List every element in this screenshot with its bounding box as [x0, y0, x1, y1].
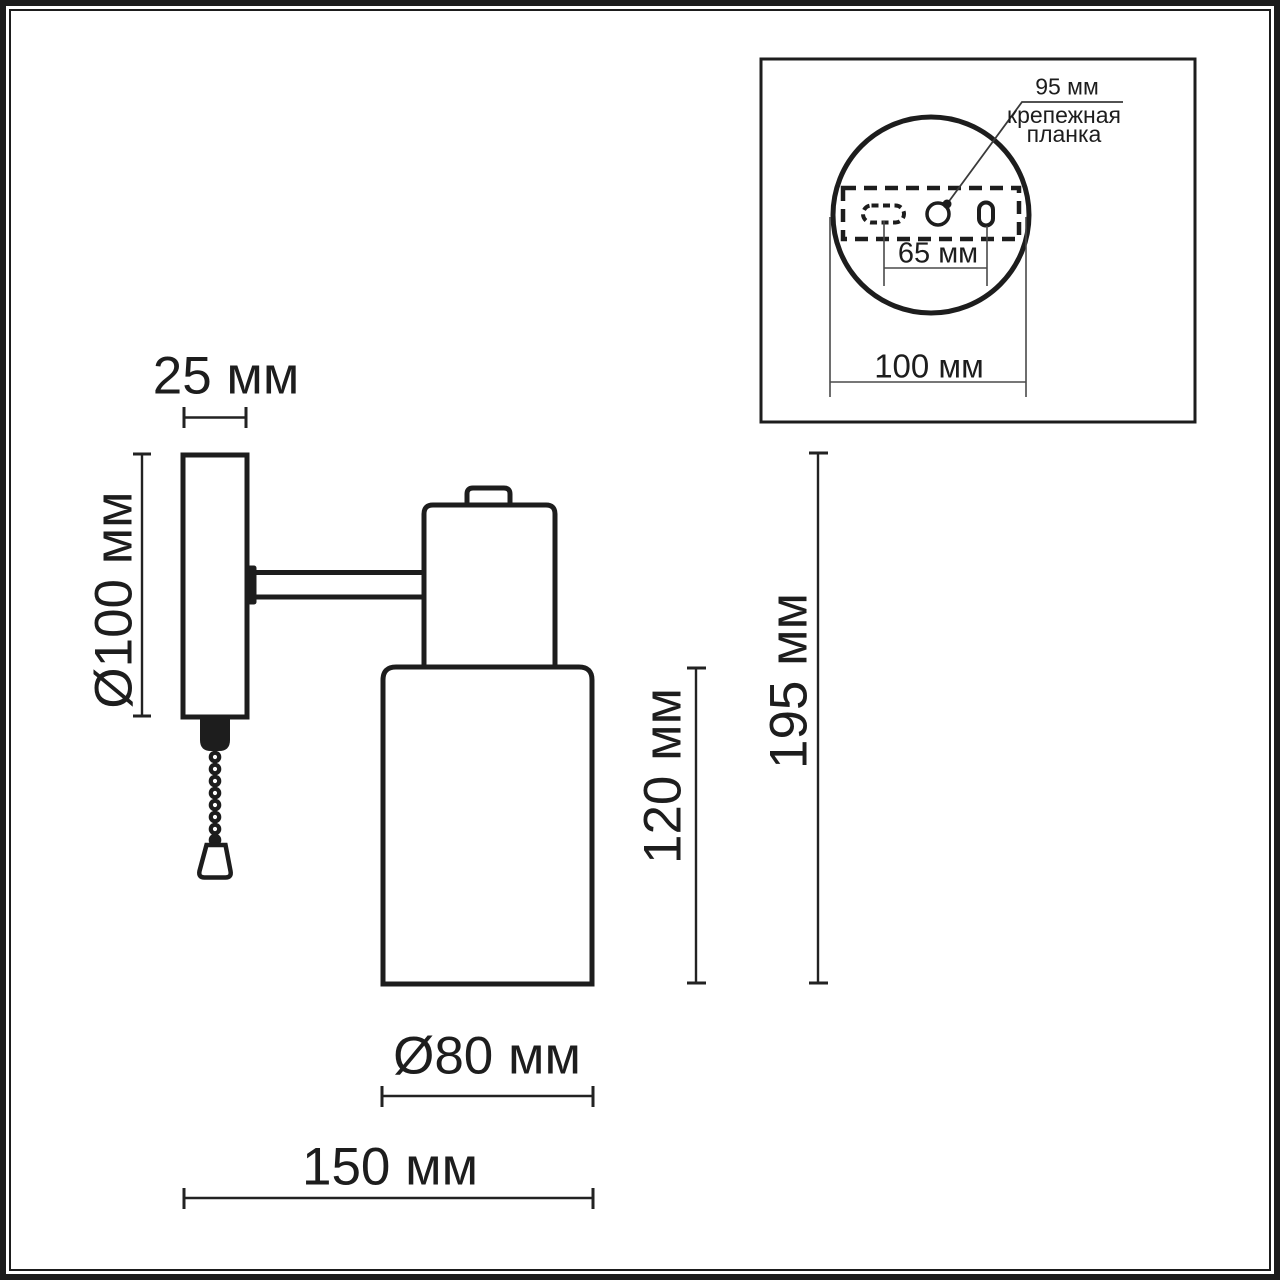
dim-line-80-diameter — [382, 1086, 593, 1107]
dim-label-shade-diameter: Ø80 мм — [393, 1030, 581, 1083]
inset-label-bracket-name: крепежная планка — [1007, 106, 1121, 144]
mounting-slot-left — [863, 206, 904, 223]
lamp-shade — [383, 667, 592, 984]
wall-plate — [183, 455, 247, 717]
lamp-side-view — [183, 455, 592, 984]
dim-label-shade-height: 120 мм — [637, 688, 690, 864]
dim-label-total-depth: 150 мм — [302, 1141, 478, 1194]
diagram-canvas — [0, 0, 1280, 1280]
inset-label-bracket-width: 95 мм — [1035, 76, 1099, 99]
leader-dot — [943, 200, 952, 209]
inset-label-base-diameter: 100 мм — [874, 350, 984, 383]
pull-handle — [199, 845, 230, 878]
pull-chain-connector — [200, 717, 230, 751]
dim-label-plate-diameter: Ø100 мм — [88, 491, 141, 708]
dim-label-plate-width: 25 мм — [153, 350, 300, 403]
inset-label-hole-spacing: 65 мм — [898, 240, 978, 269]
dim-line-25 — [184, 407, 246, 428]
dim-label-total-height: 195 мм — [763, 593, 816, 769]
pull-chain-beads — [209, 751, 222, 847]
lamp-dimension-diagram: 25 мм Ø100 мм 120 мм 195 мм Ø80 мм 150 м… — [0, 0, 1280, 1280]
mounting-hole-right — [979, 203, 993, 226]
lamp-holder — [424, 505, 555, 672]
